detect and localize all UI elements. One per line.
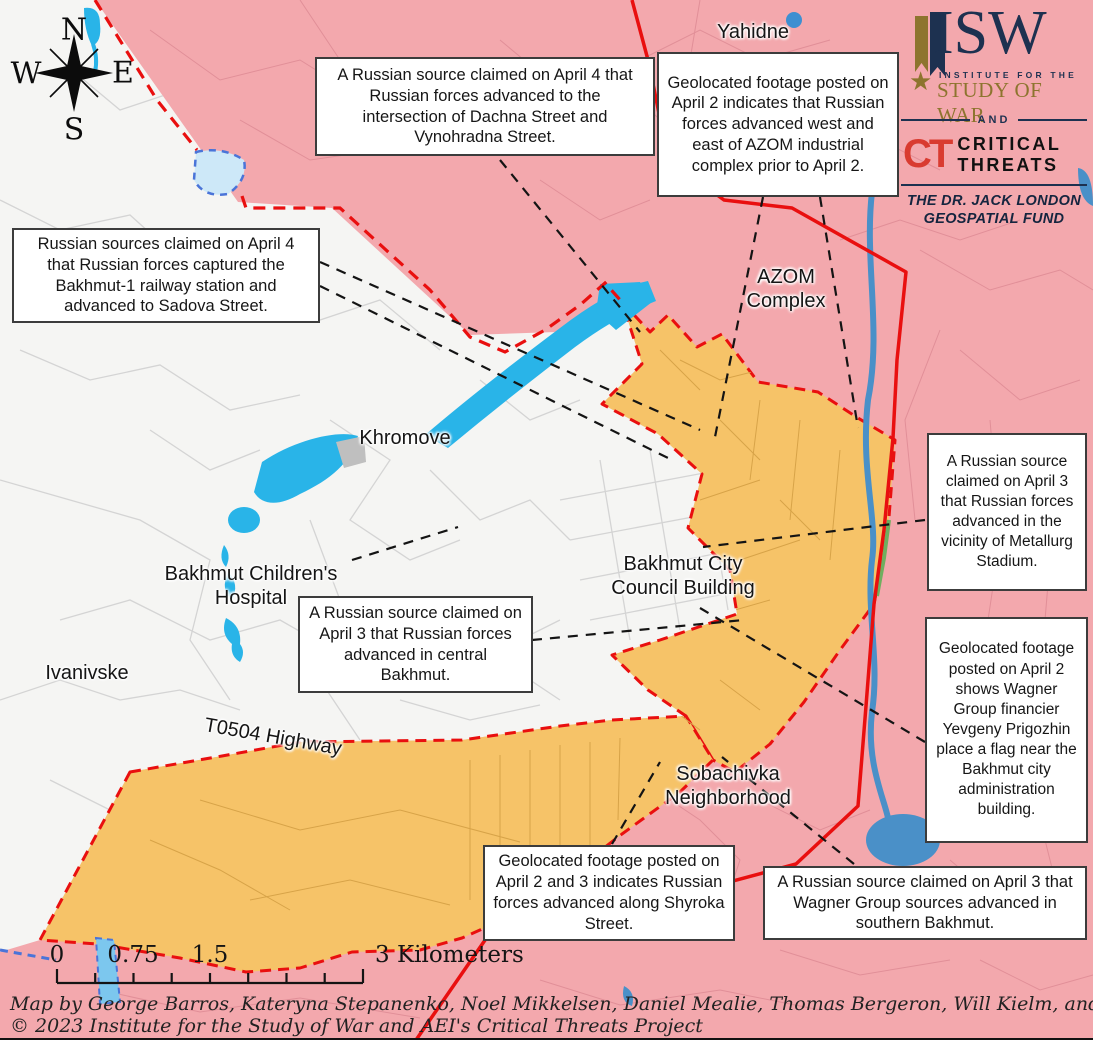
isw-star-icon: ★ bbox=[909, 68, 932, 94]
critical-threats-logo: CT CRITICALTHREATS bbox=[903, 132, 1061, 177]
divider-bar bbox=[901, 119, 970, 121]
callout-prigozhin-flag: Geolocated footage posted on April 2 sho… bbox=[925, 617, 1088, 843]
critical-text: CRITICAL bbox=[957, 134, 1061, 154]
credits-line-2: © 2023 Institute for the Study of War an… bbox=[10, 1015, 703, 1037]
scale-label-0: 0 bbox=[50, 942, 65, 968]
callout-azom: Geolocated footage posted on April 2 ind… bbox=[657, 52, 899, 197]
scale-label-075: 0.75 bbox=[107, 942, 158, 968]
compass-w: W bbox=[11, 57, 42, 92]
and-text: AND bbox=[978, 114, 1011, 126]
label-city-council: Bakhmut City Council Building bbox=[611, 553, 754, 600]
isw-ribbon-gold-icon bbox=[915, 16, 928, 72]
isw-wordmark: ISW bbox=[933, 0, 1047, 69]
logo-rule bbox=[901, 184, 1087, 186]
divider-bar bbox=[1018, 119, 1087, 121]
compass-e: E bbox=[112, 56, 134, 91]
label-azom-complex: AZOM Complex bbox=[747, 266, 826, 313]
callout-bakhmut1-station: Russian sources claimed on April 4 that … bbox=[12, 228, 320, 323]
geospatial-fund-text: THE DR. JACK LONDON GEOSPATIAL FUND bbox=[901, 192, 1087, 228]
scale-label-3km: 3 Kilometers bbox=[375, 942, 524, 968]
compass-n: N bbox=[61, 13, 87, 48]
bakhmut-battle-map: Yahidne AZOM Complex Khromove Bakhmut Ch… bbox=[0, 0, 1093, 1040]
callout-central-bakhmut: A Russian source claimed on April 3 that… bbox=[298, 596, 533, 693]
label-sobachivka: Sobachivka Neighborhood bbox=[665, 763, 791, 810]
callout-metallurg: A Russian source claimed on April 3 that… bbox=[927, 433, 1087, 591]
critical-threats-text: CRITICALTHREATS bbox=[957, 134, 1061, 175]
ct-monogram-icon: CT bbox=[903, 132, 950, 177]
callout-shyroka: Geolocated footage posted on April 2 and… bbox=[483, 845, 735, 941]
logo-and-divider: AND bbox=[901, 114, 1087, 126]
label-ivanivske: Ivanivske bbox=[45, 662, 128, 686]
credits-line-1: Map by George Barros, Kateryna Stepanenk… bbox=[10, 993, 1093, 1015]
water-pond-small bbox=[228, 507, 260, 533]
callout-southern-bakhmut: A Russian source claimed on April 3 that… bbox=[763, 866, 1087, 940]
isw-ct-logo: ★ ISW INSTITUTE FOR THE STUDY OF WAR AND… bbox=[901, 12, 1087, 224]
label-khromove: Khromove bbox=[359, 427, 450, 451]
scale-label-15: 1.5 bbox=[192, 942, 229, 968]
compass-s: S bbox=[64, 113, 85, 148]
threats-text: THREATS bbox=[957, 155, 1058, 175]
label-yahidne: Yahidne bbox=[717, 21, 789, 45]
callout-dachna-vynohradna: A Russian source claimed on April 4 that… bbox=[315, 57, 655, 156]
